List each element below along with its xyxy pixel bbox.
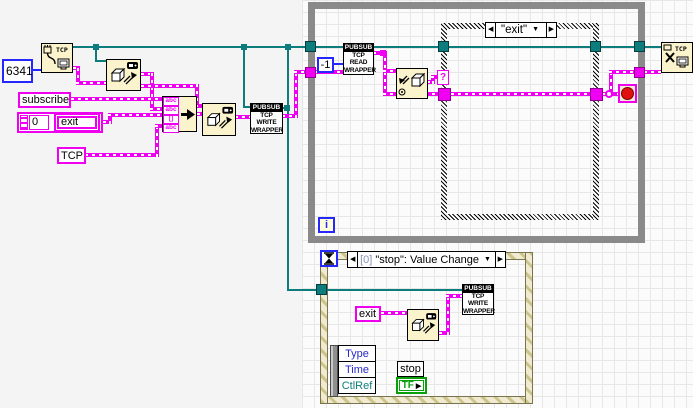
wire [645, 46, 661, 48]
port-constant[interactable]: 6341 [2, 59, 33, 83]
event-timeout-terminal[interactable] [320, 250, 338, 267]
wrapper-line: WRAPPER [463, 308, 493, 315]
concat-input-4: abc [163, 124, 179, 133]
wire-junction [93, 44, 99, 50]
wire [155, 124, 162, 128]
hourglass-icon [322, 252, 336, 265]
concat-input-3: [] [163, 115, 179, 124]
wire [446, 294, 450, 335]
merge-arrow-icon [180, 107, 196, 123]
wrapper-line: TCP [344, 52, 373, 59]
tunnel[interactable] [590, 88, 603, 101]
wrapper-line: WRITE [463, 300, 493, 307]
tcp-open-icon: TCP [42, 44, 72, 72]
wire [73, 46, 308, 48]
wire [150, 107, 162, 111]
svg-text:TCP: TCP [56, 46, 68, 54]
wire [333, 63, 343, 65]
wrapper-line: READ [344, 59, 373, 66]
wire [95, 60, 106, 62]
flatten-to-variant-node[interactable] [202, 103, 236, 136]
exit-value: exit [359, 308, 376, 320]
case-selector-label[interactable]: ◀ "exit" ▼ ▶ [485, 22, 557, 38]
wire-junction [241, 44, 247, 50]
wire [287, 289, 318, 291]
event-index: [0] [360, 254, 372, 266]
while-loop-border-right[interactable] [638, 2, 645, 243]
event-data-node[interactable] [330, 345, 338, 397]
tf-value: TF [402, 380, 414, 391]
pubsub-header: PUBSUB [344, 44, 373, 52]
svg-text:TCP: TCP [675, 45, 687, 53]
stop-boolean-terminal[interactable]: TF ▶ [396, 377, 427, 394]
wire [85, 153, 159, 157]
wire [33, 69, 41, 71]
timeout-value: -1 [321, 59, 331, 71]
tcp-close-node[interactable]: TCP [661, 42, 693, 73]
case-next-arrow-icon[interactable]: ▶ [547, 23, 556, 37]
event-dropdown-icon[interactable]: ▼ [482, 253, 493, 267]
tunnel[interactable] [438, 41, 449, 52]
cluster-number[interactable]: 0 [29, 115, 49, 130]
wrapper-line: WRAPPER [344, 67, 373, 74]
field-label: Type [345, 348, 369, 360]
event-data-field-type[interactable]: Type [338, 345, 376, 362]
case-border-left[interactable] [441, 23, 447, 220]
wire-junction [380, 50, 386, 56]
event-data-field-ctlref[interactable]: CtlRef [338, 377, 376, 394]
event-name: "stop": Value Change [375, 254, 479, 266]
exit-constant[interactable]: exit [355, 306, 381, 322]
case-dropdown-icon[interactable]: ▼ [530, 23, 541, 37]
pubsub-header: PUBSUB [251, 104, 282, 112]
event-next-arrow-icon[interactable]: ▶ [496, 253, 505, 267]
wire [451, 92, 591, 96]
case-selector-tunnel[interactable]: ? [437, 70, 449, 85]
topic-constant[interactable]: TCP [57, 147, 86, 164]
wire [108, 113, 162, 117]
cube-arrow-icon [107, 60, 140, 90]
wire [150, 72, 154, 111]
event-selector-label[interactable]: ◀ [0] "stop": Value Change ▼ ▶ [347, 251, 506, 268]
tunnel[interactable] [305, 67, 316, 78]
stop-label: stop [400, 363, 421, 375]
wire [381, 311, 407, 315]
wire [600, 46, 635, 48]
tcp-open-node[interactable]: TCP [41, 43, 73, 73]
arrow-cube-icon [397, 69, 427, 98]
tunnel[interactable] [634, 41, 645, 52]
tunnel[interactable] [438, 88, 451, 101]
while-loop-border-left[interactable] [308, 2, 315, 243]
wire [294, 70, 305, 74]
cluster-constant[interactable]: 0 exit [17, 112, 103, 133]
wire [383, 51, 387, 96]
tcp-close-icon: TCP [662, 43, 692, 72]
wire [287, 46, 289, 291]
field-label: CtlRef [342, 380, 373, 392]
wrapper-line: TCP [251, 112, 282, 119]
tunnel[interactable] [316, 284, 327, 295]
field-label: Time [345, 364, 369, 376]
pubsub-tcp-read-wrapper-node[interactable]: PUBSUB TCP READ WRAPPER [343, 43, 374, 75]
pubsub-header: PUBSUB [463, 285, 493, 293]
while-loop-border-bottom[interactable] [308, 236, 645, 243]
wire [141, 84, 199, 88]
wire [448, 46, 591, 48]
pubsub-tcp-write-wrapper-node[interactable]: PUBSUB TCP WRITE WRAPPER [250, 103, 283, 134]
wire [155, 124, 159, 157]
wire [446, 294, 462, 298]
control-arrow-icon: ▶ [416, 382, 421, 390]
wrapper-line: WRAPPER [251, 127, 282, 134]
event-data-field-time[interactable]: Time [338, 361, 376, 378]
tunnel[interactable] [305, 41, 316, 52]
flatten-to-variant-node[interactable] [407, 309, 439, 341]
wire [76, 81, 106, 85]
subscribe-constant[interactable]: subscribe [18, 92, 71, 108]
stop-terminal-label: stop [397, 361, 424, 377]
event-prev-arrow-icon[interactable]: ◀ [348, 253, 357, 267]
wire [373, 46, 439, 48]
case-border-right[interactable] [593, 23, 599, 220]
wire [327, 289, 462, 291]
cluster-string[interactable]: exit [54, 113, 100, 132]
case-border-bottom[interactable] [441, 214, 599, 220]
stop-sign-icon [621, 87, 634, 100]
wire-junction [605, 90, 613, 98]
wire [294, 70, 298, 118]
port-value: 6341 [6, 64, 33, 78]
concatenate-node[interactable]: abc abc [] abc [162, 96, 197, 132]
event-border-bottom[interactable] [320, 396, 533, 404]
wire [315, 46, 343, 48]
event-border-right[interactable] [525, 252, 533, 404]
case-selector-text: "exit" [501, 24, 527, 36]
pubsub-tcp-write-wrapper-node[interactable]: PUBSUB TCP WRITE WRAPPER [462, 284, 494, 315]
event-border-left[interactable] [320, 252, 328, 404]
wire-junction [285, 44, 291, 50]
wire [235, 115, 250, 119]
case-prev-arrow-icon[interactable]: ◀ [486, 23, 495, 37]
wire [243, 46, 245, 108]
loop-condition-terminal[interactable] [618, 84, 637, 103]
tunnel[interactable] [634, 67, 645, 78]
timeout-constant[interactable]: -1 [317, 57, 334, 73]
flatten-to-variant-node[interactable] [106, 59, 141, 91]
wire [71, 97, 162, 101]
wire-junction [284, 105, 290, 111]
tunnel[interactable] [590, 41, 601, 52]
variant-to-data-node[interactable] [396, 68, 428, 99]
cube-arrow-icon [203, 104, 235, 135]
wire [243, 106, 250, 108]
topic-value: TCP [61, 150, 83, 162]
while-loop-border-top[interactable] [308, 2, 645, 9]
cube-arrow-icon [408, 310, 438, 340]
ring-icon [20, 115, 28, 130]
cluster-string-value: exit [57, 116, 97, 129]
concat-input-1: abc [163, 97, 179, 106]
concat-input-2: abc [163, 106, 179, 115]
subscribe-value: subscribe [22, 94, 69, 106]
wrapper-line: WRITE [251, 119, 282, 126]
wire [383, 69, 396, 73]
wrapper-line: TCP [463, 293, 493, 300]
loop-iteration-terminal[interactable]: i [318, 217, 335, 233]
